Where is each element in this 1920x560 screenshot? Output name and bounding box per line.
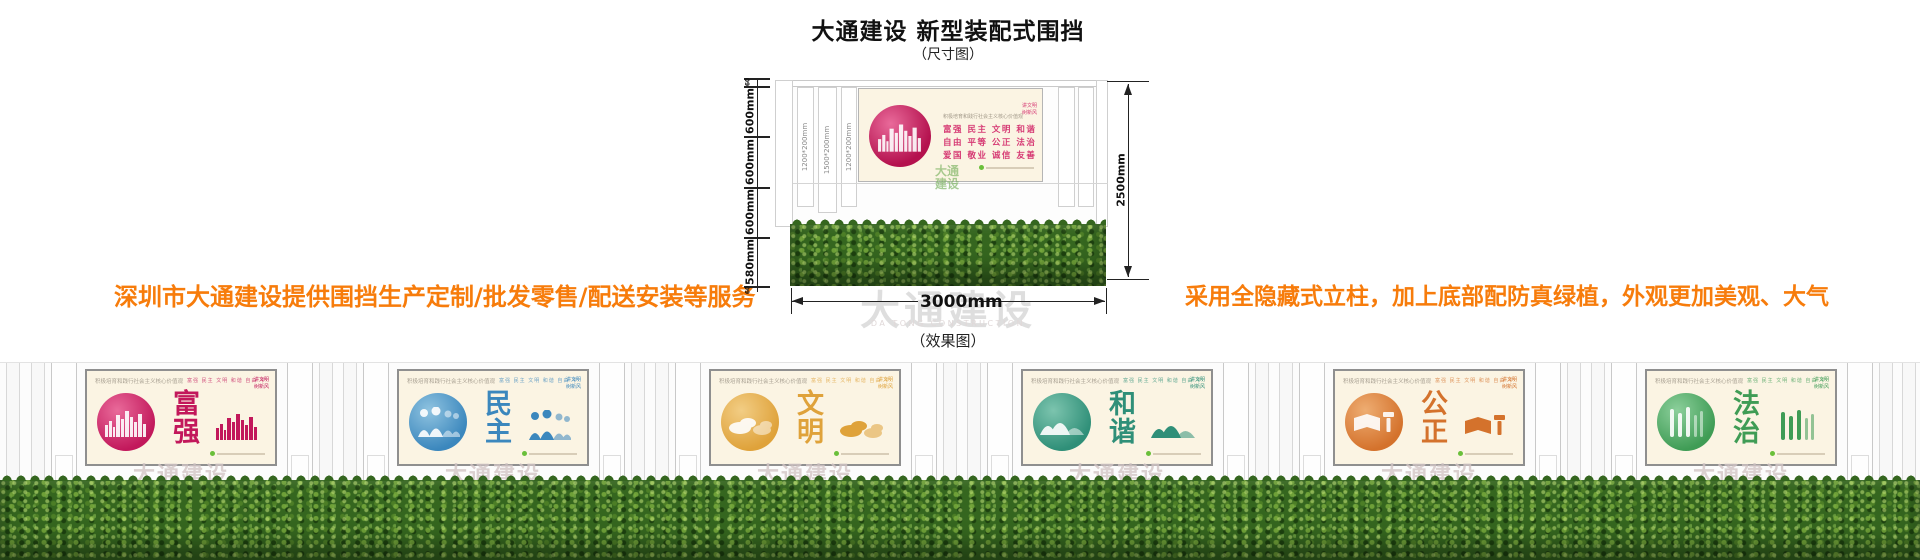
poster-slogan: 积极培育和践行社会主义核心价值观	[407, 377, 495, 385]
fence-right-column	[1096, 80, 1108, 227]
publisher-badge	[834, 451, 889, 456]
height-label: 2500mm	[1115, 153, 1128, 207]
poster-top-row: 积极培育和践行社会主义核心价值观 富强 民主 文明 和谐 自由 平等 公正 法治…	[1343, 377, 1515, 385]
papercut-circle	[97, 393, 155, 451]
core-values-poster: 积极培育和践行社会主义核心价值观 富强 民主 文明 和谐 自由 平等 公正 法治…	[397, 369, 589, 466]
arrow-up-icon	[1124, 84, 1132, 95]
poster-corner-slogan: 讲文明 树新风	[875, 377, 893, 390]
poster-corner-slogan: 讲文明 树新风	[1187, 377, 1205, 390]
value-word: 富强	[173, 391, 200, 448]
publisher-badge	[1770, 451, 1825, 456]
poster-top-row: 积极培育和践行社会主义核心价值观 富强 民主 文明 和谐 自由 平等 公正 法治…	[719, 377, 891, 385]
city-skyline-icon	[215, 410, 259, 440]
papercut-circle	[1657, 393, 1715, 451]
arrow-down-icon	[1124, 266, 1132, 277]
ext-line-bottom	[1107, 279, 1149, 280]
dimension-figure-label: （尺寸图）	[0, 44, 1896, 64]
left-dimension-line	[757, 78, 758, 292]
column-size-label: 1200*200mm	[845, 123, 853, 171]
papercut-circle	[1345, 393, 1403, 451]
column-size-label: 1200*200mm	[801, 123, 809, 171]
poster-slogan: 积极培育和践行社会主义核心价值观	[1031, 377, 1119, 385]
poster-corner-slogan: 讲文明 树新风	[251, 377, 269, 390]
clouds-icon	[728, 407, 772, 437]
bamboo-icon	[1664, 407, 1708, 437]
green-dot-icon	[1458, 451, 1463, 456]
poster-top-row: 积极培育和践行社会主义核心价值观 富强 民主 文明 和谐 自由 平等 公正 法治…	[1031, 377, 1203, 385]
poster-corner-slogan: 讲文明 树新风	[1499, 377, 1517, 390]
dim-60-top: 60	[745, 78, 752, 86]
width-label: 3000mm	[920, 292, 1003, 312]
clouds-icon	[839, 410, 883, 440]
value-word: 和谐	[1109, 391, 1136, 448]
effect-figure-label: （效果图）	[0, 330, 1896, 351]
badge-text-line	[1153, 453, 1201, 455]
poster-slogan: 积极培育和践行社会主义核心价值观	[1343, 377, 1431, 385]
dim-600-3: 600mm	[744, 189, 757, 235]
arrow-left-icon	[792, 297, 803, 305]
publisher-badge	[1146, 451, 1201, 456]
people-icon	[416, 407, 460, 437]
poster-slogan: 积极培育和践行社会主义核心价值观	[943, 113, 1023, 120]
poster-slogan: 积极培育和践行社会主义核心价值观	[719, 377, 807, 385]
green-dot-icon	[834, 451, 839, 456]
fence-top-rail	[775, 80, 1108, 87]
mountains-icon	[1151, 410, 1195, 440]
dim-600-2: 600mm	[744, 139, 757, 185]
page: 大通建设 新型装配式围挡 （尺寸图） 深圳市大通建设提供围挡生产定制/批发零售/…	[0, 0, 1920, 560]
book-gavel-icon	[1463, 410, 1507, 440]
value-word: 民主	[485, 391, 512, 448]
badge-text-line	[986, 167, 1034, 169]
publisher-badge	[1458, 451, 1513, 456]
core-values-poster: 积极培育和践行社会主义核心价值观 富强 民主 文明 和谐 自由 平等 公正 法治…	[85, 369, 277, 466]
value-word: 法治	[1733, 391, 1760, 448]
dim-tick	[744, 136, 770, 138]
papercut-circle	[409, 393, 467, 451]
poster-top-row: 积极培育和践行社会主义核心价值观 富强 民主 文明 和谐 自由 平等 公正 法治…	[407, 377, 579, 385]
value-word: 文明	[797, 391, 824, 448]
papercut-circle	[869, 105, 931, 167]
ext-line-top	[1107, 81, 1149, 82]
core-values-poster: 积极培育和践行社会主义核心价值观 富强 民主 文明 和谐 自由 平等 公正 法治…	[1021, 369, 1213, 466]
poster-top-row: 积极培育和践行社会主义核心价值观 富强 民主 文明 和谐 自由 平等 公正 法治…	[95, 377, 267, 385]
green-watermark: 大通建设	[934, 165, 960, 190]
values-line-3: 爱国 敬业 诚信 友善	[943, 149, 1036, 161]
fence-column-right2	[1078, 87, 1094, 207]
dim-600-1: 600mm	[744, 88, 757, 134]
page-title: 大通建设 新型装配式围挡	[0, 12, 1896, 46]
green-dot-icon	[1770, 451, 1775, 456]
poster-corner-slogan: 讲文明 树新风	[563, 377, 581, 390]
publisher-badge	[210, 451, 265, 456]
poster-slogan: 积极培育和践行社会主义核心价值观	[95, 377, 183, 385]
dim-60-bottom: 60	[745, 286, 752, 294]
core-values-poster: 积极培育和践行社会主义核心价值观 富强 民主 文明 和谐 自由 平等 公正 法治…	[1645, 369, 1837, 466]
poster-slogan: 积极培育和践行社会主义核心价值观	[1655, 377, 1743, 385]
values-line-1: 富强 民主 文明 和谐	[943, 123, 1036, 135]
grass-hedge	[0, 480, 1920, 560]
bamboo-icon	[1775, 410, 1819, 440]
green-dot-icon	[522, 451, 527, 456]
papercut-circle	[1033, 393, 1091, 451]
poster-corner-slogan: 讲文明 树新风	[1811, 377, 1829, 390]
poster-top-row: 积极培育和践行社会主义核心价值观 富强 民主 文明 和谐 自由 平等 公正 法治…	[1655, 377, 1827, 385]
core-values-poster: 积极培育和践行社会主义核心价值观 富强 民主 文明 和谐 自由 平等 公正 法治…	[1333, 369, 1525, 466]
poster-corner-slogan: 讲文明 树新风	[1019, 103, 1037, 116]
green-dot-icon	[210, 451, 215, 456]
papercut-circle	[721, 393, 779, 451]
badge-text-line	[529, 453, 577, 455]
fence-column-right1	[1058, 87, 1075, 207]
watermark-en: DA TONG CONSTRUCTION	[0, 319, 1896, 328]
core-values-poster: 积极培育和践行社会主义核心价值观 富强 民主 文明 和谐 自由 平等 公正 法治…	[709, 369, 901, 466]
grass-hedge-small	[790, 224, 1106, 286]
badge-text-line	[1777, 453, 1825, 455]
dim-580: 580mm	[744, 239, 757, 285]
value-word: 公正	[1421, 391, 1448, 448]
width-dimension-line	[792, 301, 918, 302]
publisher-badge	[522, 451, 577, 456]
mountains-icon	[1040, 407, 1084, 437]
fence-left-column	[775, 80, 793, 227]
green-dot-icon	[1146, 451, 1151, 456]
height-dimension-line	[1128, 84, 1129, 277]
ext-line-right	[1106, 288, 1107, 314]
column-size-label: 1500*200mm	[823, 126, 831, 174]
publisher-badge	[979, 165, 1034, 170]
badge-text-line	[1465, 453, 1513, 455]
city-skyline-icon	[877, 119, 923, 153]
arrow-right-icon	[1094, 297, 1105, 305]
green-dot-icon	[979, 165, 984, 170]
values-line-2: 自由 平等 公正 法治	[943, 136, 1036, 148]
people-icon	[527, 410, 571, 440]
city-skyline-icon	[104, 407, 148, 437]
book-gavel-icon	[1352, 407, 1396, 437]
badge-text-line	[217, 453, 265, 455]
badge-text-line	[841, 453, 889, 455]
